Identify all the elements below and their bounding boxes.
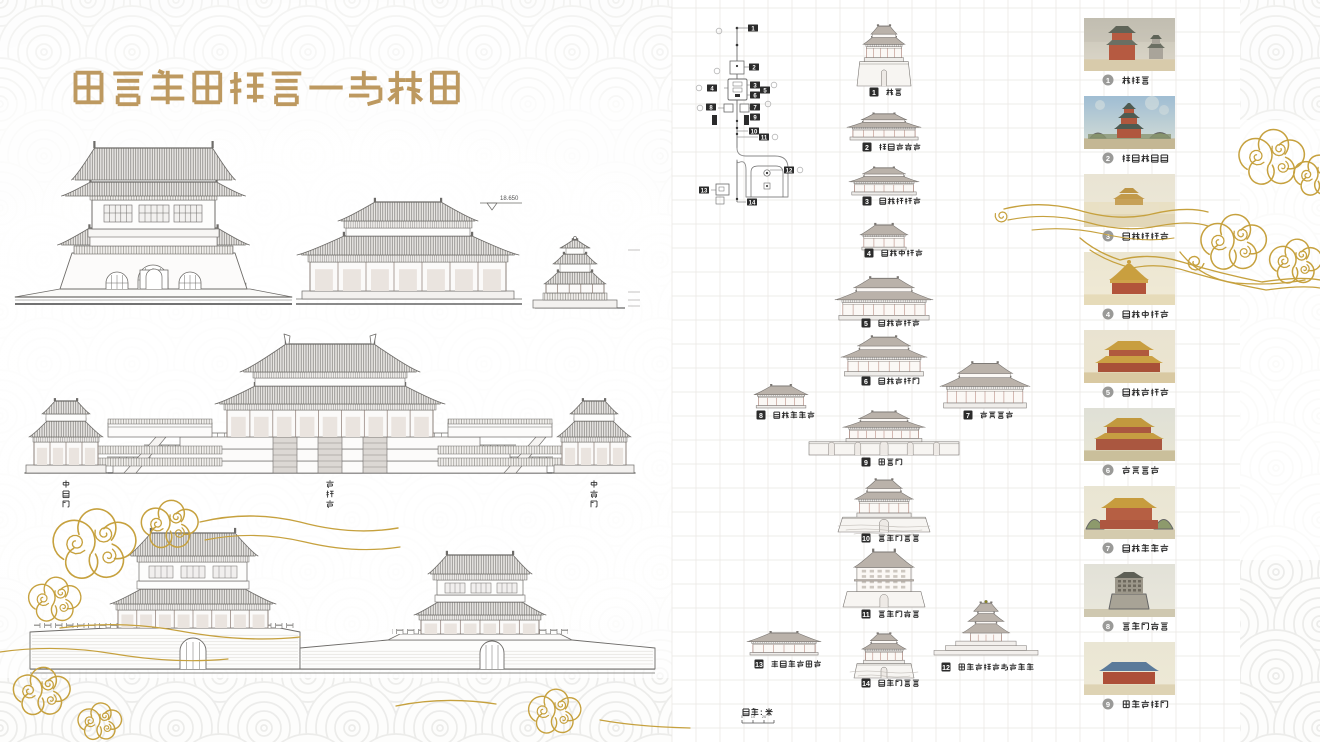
svg-text:7: 7 xyxy=(1106,544,1110,553)
svg-text:6: 6 xyxy=(1106,466,1110,475)
svg-text:2: 2 xyxy=(865,145,869,152)
svg-text:3: 3 xyxy=(865,199,869,206)
svg-text:5: 5 xyxy=(864,321,868,328)
svg-text:13: 13 xyxy=(701,188,708,194)
svg-text:6: 6 xyxy=(864,379,868,386)
svg-text:10: 10 xyxy=(751,129,758,135)
svg-text:11: 11 xyxy=(761,135,768,141)
svg-text:13: 13 xyxy=(755,662,763,669)
svg-text:20: 20 xyxy=(762,714,767,719)
svg-text:18.650: 18.650 xyxy=(500,196,519,202)
svg-text:2: 2 xyxy=(1106,154,1110,163)
svg-text:12: 12 xyxy=(942,665,950,672)
svg-text:10: 10 xyxy=(862,536,870,543)
svg-text:1: 1 xyxy=(872,90,876,97)
svg-text:11: 11 xyxy=(862,612,870,619)
svg-text:5: 5 xyxy=(1106,388,1110,397)
svg-text:14: 14 xyxy=(862,681,870,688)
svg-text:9: 9 xyxy=(864,460,868,467)
svg-text:14: 14 xyxy=(749,200,756,206)
svg-text:1: 1 xyxy=(1106,76,1110,85)
svg-text:10: 10 xyxy=(751,714,756,719)
svg-text:9: 9 xyxy=(1106,700,1110,709)
svg-text:3: 3 xyxy=(1106,232,1110,241)
svg-text:4: 4 xyxy=(867,251,871,258)
svg-text:7: 7 xyxy=(966,413,970,420)
svg-text:12: 12 xyxy=(786,168,793,174)
svg-text:8: 8 xyxy=(1106,622,1110,631)
svg-text:8: 8 xyxy=(759,413,763,420)
